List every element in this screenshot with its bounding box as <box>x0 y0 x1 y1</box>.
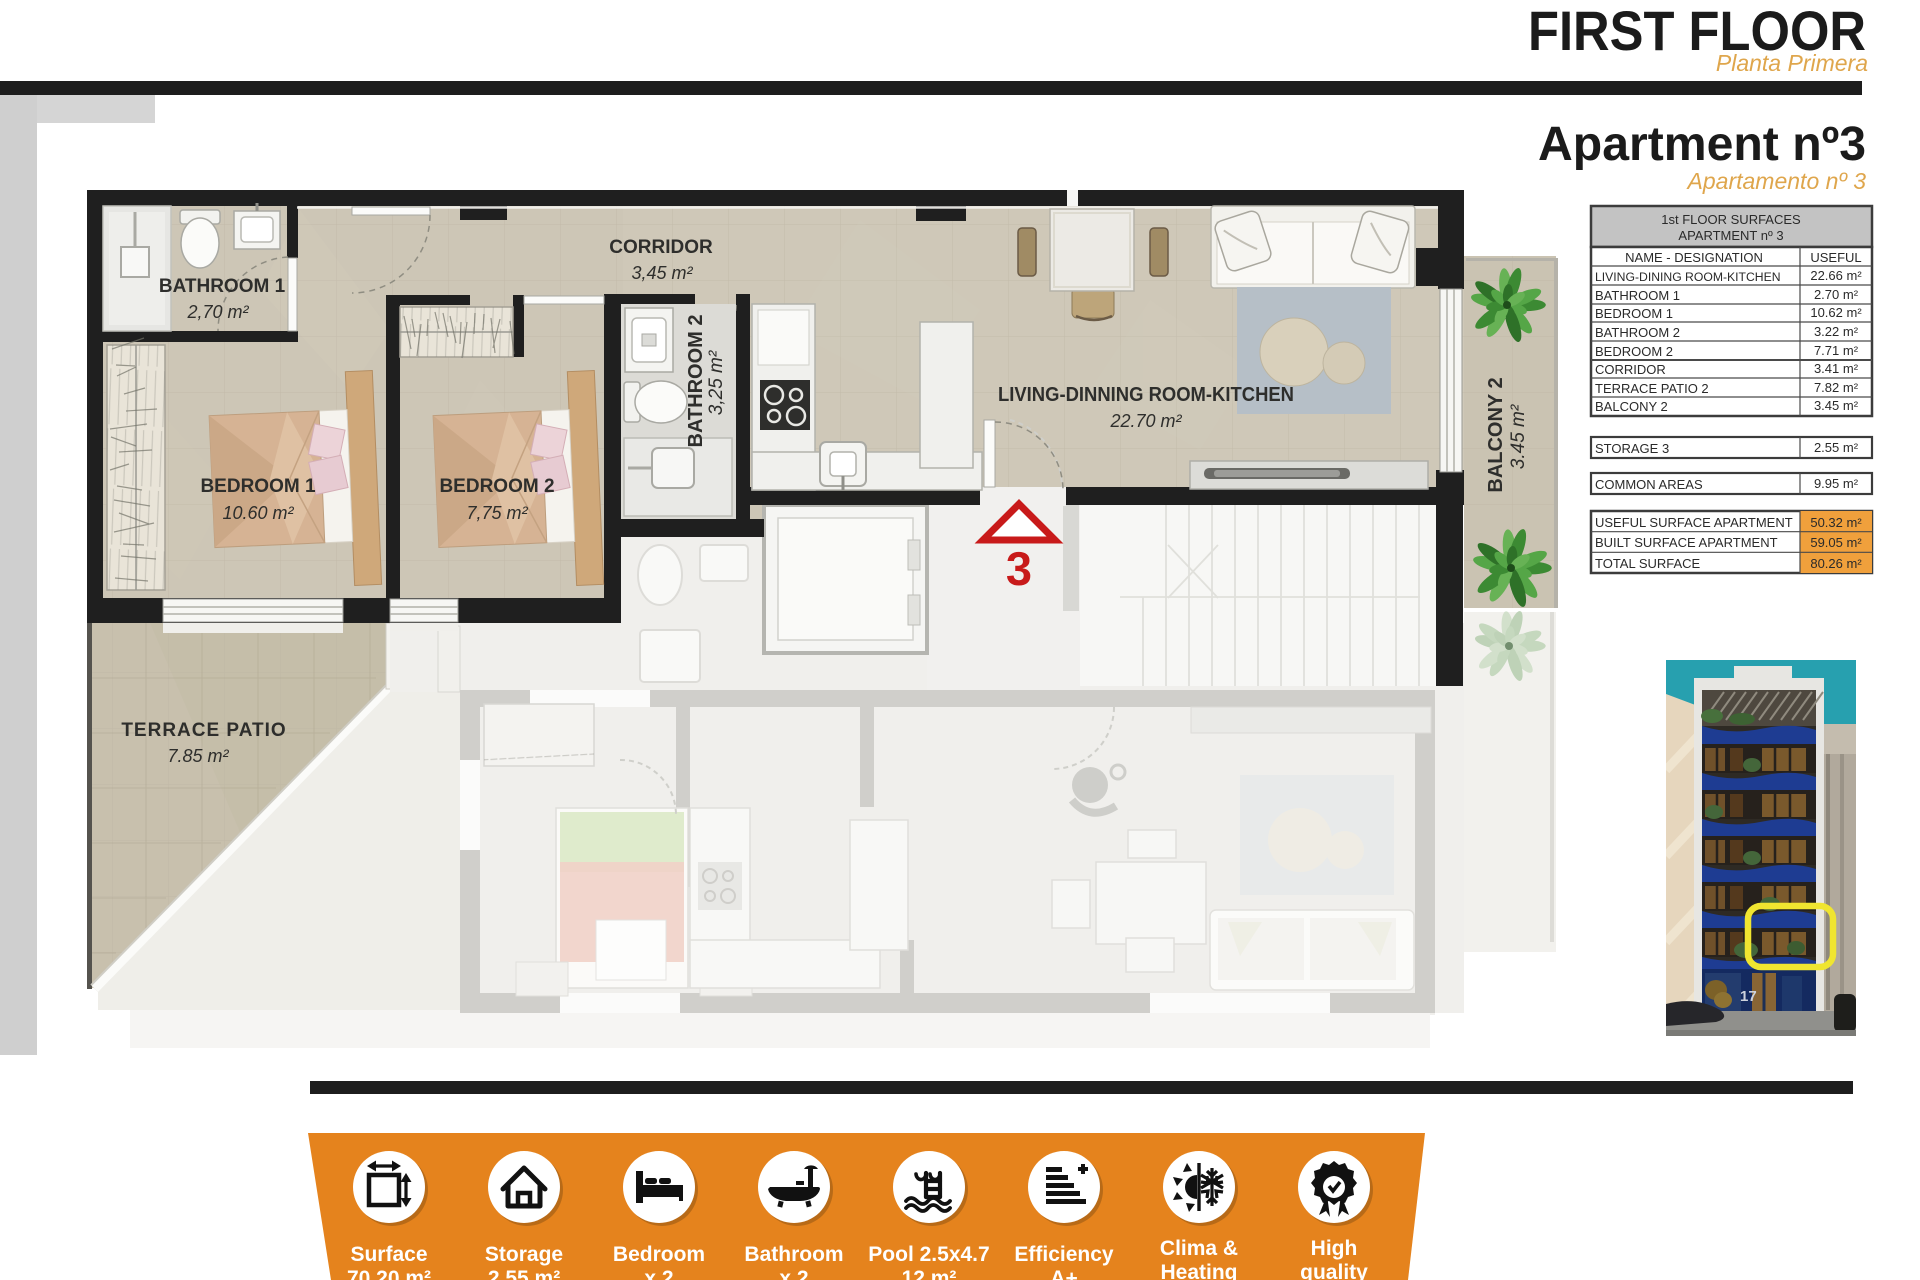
svg-text:LIVING-DINNING ROOM-KITCHEN: LIVING-DINNING ROOM-KITCHEN <box>998 384 1294 406</box>
svg-text:APARTMENT nº 3: APARTMENT nº 3 <box>1678 228 1783 243</box>
svg-text:Pool 2.5x4.7: Pool 2.5x4.7 <box>868 1243 989 1266</box>
svg-text:CORRIDOR: CORRIDOR <box>1595 362 1666 377</box>
svg-text:BEDROOM 2: BEDROOM 2 <box>439 476 554 497</box>
svg-text:TOTAL SURFACE: TOTAL SURFACE <box>1595 556 1701 571</box>
svg-text:3.22 m²: 3.22 m² <box>1814 324 1859 339</box>
svg-text:7.82 m²: 7.82 m² <box>1814 380 1859 395</box>
svg-text:3: 3 <box>1006 542 1032 595</box>
svg-text:BEDROOM 1: BEDROOM 1 <box>200 476 316 497</box>
svg-text:CORRIDOR: CORRIDOR <box>609 237 713 258</box>
svg-text:Bathroom: Bathroom <box>744 1243 843 1266</box>
svg-text:x 2: x 2 <box>644 1267 673 1280</box>
svg-text:TERRACE PATIO 2: TERRACE PATIO 2 <box>1595 381 1709 396</box>
svg-text:Clima &: Clima & <box>1160 1237 1238 1260</box>
svg-text:USEFUL: USEFUL <box>1810 250 1861 265</box>
svg-text:STORAGE 3: STORAGE 3 <box>1595 441 1669 456</box>
svg-text:Storage: Storage <box>485 1243 563 1266</box>
svg-text:BATHROOM 1: BATHROOM 1 <box>159 276 286 297</box>
svg-text:12 m²: 12 m² <box>902 1267 957 1280</box>
svg-text:x 2: x 2 <box>779 1267 808 1280</box>
svg-text:2.70 m²: 2.70 m² <box>1814 287 1859 302</box>
svg-text:10.60 m²: 10.60 m² <box>222 503 294 523</box>
svg-text:BATHROOM 1: BATHROOM 1 <box>1595 288 1680 303</box>
svg-text:7,75 m²: 7,75 m² <box>466 503 528 523</box>
svg-text:BATHROOM 2: BATHROOM 2 <box>1595 325 1680 340</box>
svg-text:7.85 m²: 7.85 m² <box>167 746 229 766</box>
svg-text:LIVING-DINING ROOM-KITCHEN: LIVING-DINING ROOM-KITCHEN <box>1595 270 1781 284</box>
svg-text:9.95 m²: 9.95 m² <box>1814 476 1859 491</box>
svg-text:High: High <box>1311 1237 1358 1260</box>
svg-text:59.05 m²: 59.05 m² <box>1810 535 1862 550</box>
svg-text:BEDROOM 2: BEDROOM 2 <box>1595 344 1673 359</box>
svg-text:2.55 m²: 2.55 m² <box>488 1267 560 1280</box>
svg-text:COMMON AREAS: COMMON AREAS <box>1595 477 1703 492</box>
svg-text:Bedroom: Bedroom <box>613 1243 705 1266</box>
svg-text:Apartment nº3: Apartment nº3 <box>1538 118 1866 171</box>
svg-text:Planta Primera: Planta Primera <box>1716 50 1868 76</box>
svg-text:Apartamento nº 3: Apartamento nº 3 <box>1686 168 1867 194</box>
svg-text:quality: quality <box>1300 1261 1368 1280</box>
svg-text:3,45 m²: 3,45 m² <box>631 263 693 283</box>
svg-text:50.32 m²: 50.32 m² <box>1810 515 1862 530</box>
svg-text:3,25 m²: 3,25 m² <box>706 350 727 415</box>
svg-text:Heating: Heating <box>1160 1261 1237 1280</box>
svg-text:Efficiency: Efficiency <box>1014 1243 1114 1266</box>
svg-text:A+: A+ <box>1050 1267 1077 1280</box>
svg-text:BALCONY 2: BALCONY 2 <box>1595 399 1668 414</box>
svg-text:1st FLOOR SURFACES: 1st FLOOR SURFACES <box>1661 212 1801 227</box>
svg-text:3.45 m²: 3.45 m² <box>1814 398 1859 413</box>
svg-text:BATHROOM 2: BATHROOM 2 <box>685 315 707 448</box>
svg-text:2.55 m²: 2.55 m² <box>1814 440 1859 455</box>
svg-text:70.20 m²: 70.20 m² <box>347 1267 431 1280</box>
svg-text:22.66 m²: 22.66 m² <box>1810 268 1862 283</box>
svg-text:NAME - DESIGNATION: NAME - DESIGNATION <box>1625 250 1763 265</box>
svg-text:7.71 m²: 7.71 m² <box>1814 343 1859 358</box>
svg-text:17: 17 <box>1740 988 1757 1005</box>
svg-text:2,70 m²: 2,70 m² <box>186 302 249 322</box>
svg-text:3.45 m²: 3.45 m² <box>1508 404 1529 469</box>
svg-text:10.62 m²: 10.62 m² <box>1810 305 1862 320</box>
svg-text:USEFUL SURFACE APARTMENT: USEFUL SURFACE APARTMENT <box>1595 515 1793 530</box>
svg-text:22.70 m²: 22.70 m² <box>1109 411 1182 431</box>
svg-text:3.41 m²: 3.41 m² <box>1814 361 1859 376</box>
svg-text:BEDROOM 1: BEDROOM 1 <box>1595 306 1673 321</box>
svg-text:80.26 m²: 80.26 m² <box>1810 556 1862 571</box>
svg-text:BALCONY 2: BALCONY 2 <box>1485 377 1507 492</box>
svg-text:Surface: Surface <box>350 1243 427 1266</box>
svg-text:BUILT SURFACE APARTMENT: BUILT SURFACE APARTMENT <box>1595 535 1778 550</box>
svg-text:TERRACE PATIO: TERRACE PATIO <box>121 720 286 741</box>
